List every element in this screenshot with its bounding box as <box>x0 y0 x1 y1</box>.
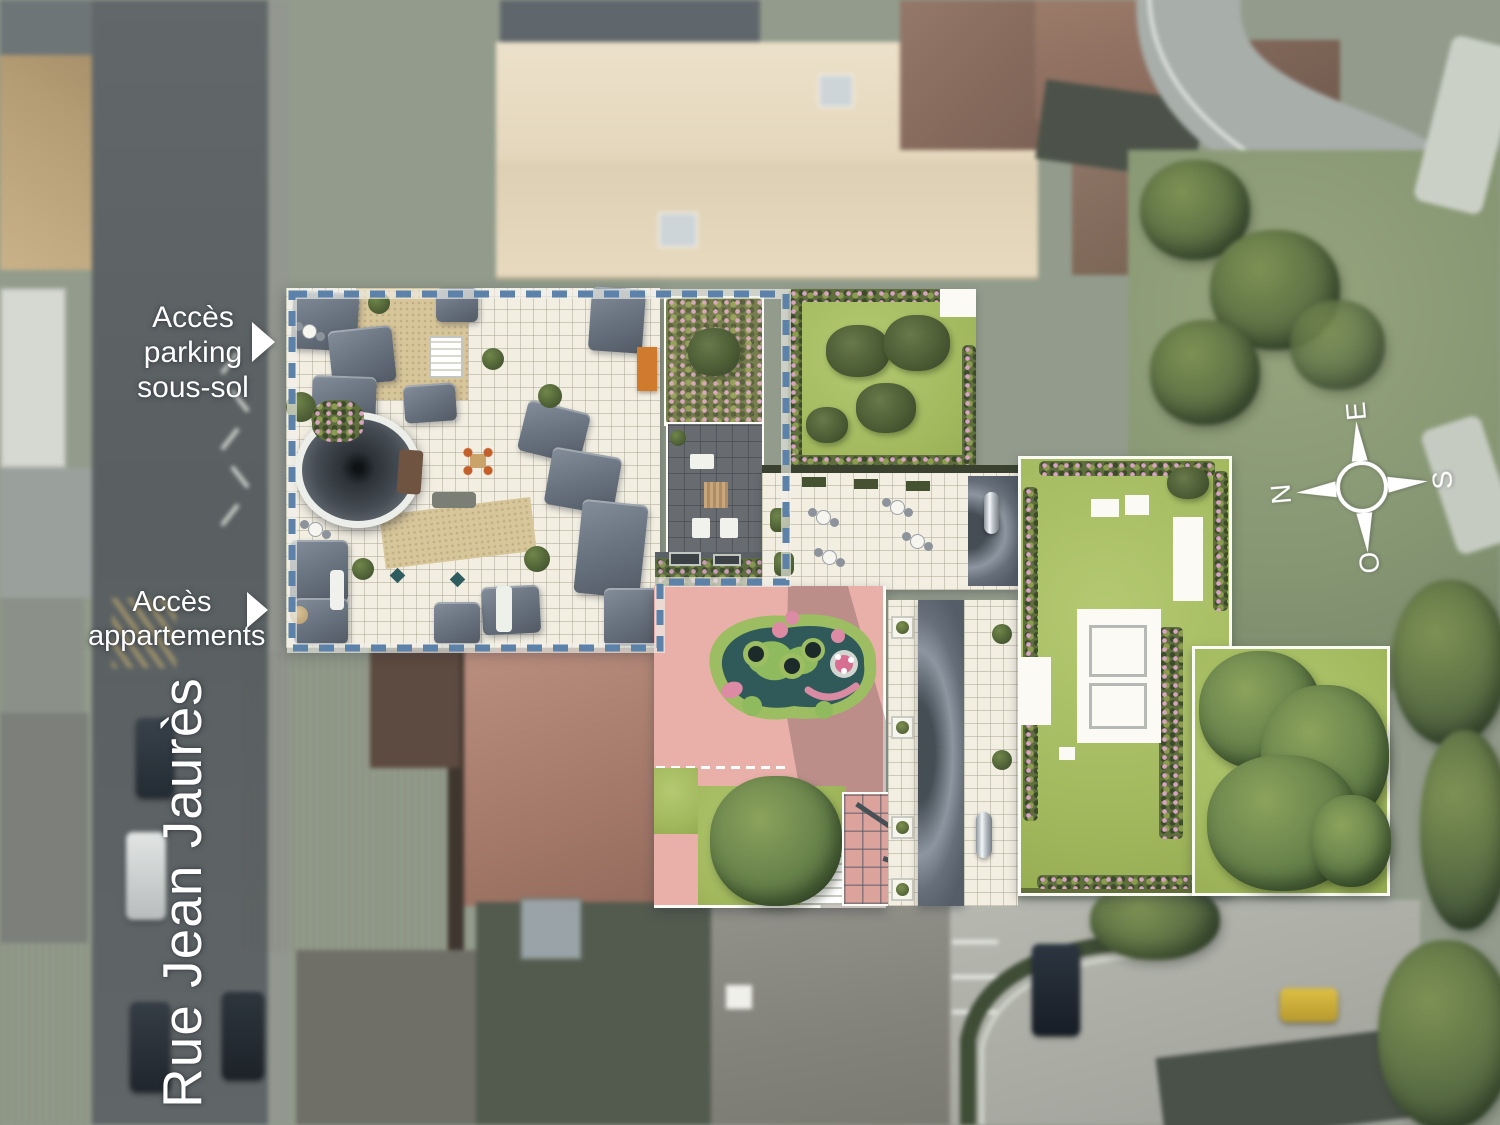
parked-car <box>1032 944 1080 1036</box>
skylight <box>1091 499 1119 517</box>
street-name-label: Rue Jean Jaurès <box>150 677 214 1108</box>
parasol <box>290 606 308 624</box>
sun-lounger <box>692 518 710 538</box>
flower-border <box>1023 487 1038 821</box>
roof-section <box>573 499 648 599</box>
access-apartments-line1: Accès <box>88 586 256 620</box>
garden-bush <box>856 383 916 433</box>
shrub <box>992 624 1012 644</box>
tree <box>1378 940 1500 1125</box>
compass-north-label: N <box>1264 483 1297 506</box>
building-block <box>0 598 85 713</box>
bistro-table <box>308 522 323 537</box>
flower-border <box>1037 875 1217 889</box>
shrub <box>482 348 504 370</box>
compass-east-label: E <box>1340 401 1373 422</box>
outdoor-sofa <box>396 449 423 495</box>
shrub <box>368 292 390 314</box>
roof-section <box>434 602 480 644</box>
access-parking-line3: sous-sol <box>118 370 268 405</box>
outdoor-sofa <box>432 492 476 508</box>
walkway-east <box>964 600 1018 906</box>
garden-bush <box>806 407 848 443</box>
wood-deck <box>704 482 728 508</box>
flower-border <box>788 289 802 471</box>
compass-north-needle <box>1296 481 1337 500</box>
flower-border <box>1213 471 1228 611</box>
bistro-table <box>910 534 925 549</box>
building-white <box>0 288 66 468</box>
shrub <box>688 328 740 376</box>
white-sofa <box>496 586 512 632</box>
playground <box>692 602 892 732</box>
shrub <box>670 430 686 446</box>
compass-east-needle <box>1348 421 1367 462</box>
roof-access <box>940 289 976 317</box>
white-sofa <box>330 570 344 610</box>
bistro-table <box>822 550 837 565</box>
access-parking-line2: parking <box>118 335 268 370</box>
skylight-large <box>1077 609 1161 743</box>
orange-awning <box>637 347 657 391</box>
access-parking-label: Accès parking sous-sol <box>118 300 268 405</box>
skylight-pane <box>1089 625 1147 677</box>
access-apartments-label: Accès appartements <box>88 586 256 654</box>
roof-section <box>588 286 646 354</box>
planter-box <box>802 477 826 487</box>
parked-car-yellow <box>1280 988 1338 1022</box>
bistro-table <box>302 324 317 339</box>
planter-box <box>906 481 930 491</box>
compass-rose: N E S O <box>1262 387 1462 587</box>
skylight <box>520 898 582 960</box>
planter <box>891 716 914 739</box>
skylight-pane <box>1089 683 1147 729</box>
metal-vent <box>976 812 992 858</box>
building-block <box>0 713 88 943</box>
shadow-roof <box>370 648 460 768</box>
lounge-cushion <box>450 572 466 588</box>
compass-west-needle <box>1356 512 1375 553</box>
park-tree <box>1290 300 1385 390</box>
hedge-line <box>762 465 1018 473</box>
metal-vent <box>984 492 999 534</box>
common-terrace <box>762 472 1018 590</box>
dining-set-orange <box>460 444 496 478</box>
house-roof <box>0 943 92 1125</box>
skylight <box>1059 747 1075 760</box>
bistro-table <box>890 500 905 515</box>
tree <box>1392 580 1500 745</box>
access-apartments-arrow-icon <box>247 592 268 628</box>
rooftop-terrace-block <box>286 288 660 648</box>
large-tree <box>1311 795 1391 887</box>
sun-lounger <box>690 454 714 469</box>
access-parking-arrow-icon <box>252 322 275 362</box>
flower-court <box>666 298 762 424</box>
planter <box>891 878 914 901</box>
garden-bush <box>1167 467 1209 499</box>
roof-section <box>436 288 478 322</box>
skylight <box>818 74 854 108</box>
house-roof <box>464 648 676 906</box>
paved-courtyard <box>668 424 762 554</box>
skylight <box>1173 517 1203 601</box>
skylight <box>726 985 752 1009</box>
shrub <box>770 508 790 532</box>
flower-border <box>962 345 976 469</box>
garden-bush <box>884 315 950 371</box>
shared-garden <box>788 289 976 471</box>
planter-box <box>854 479 878 489</box>
shrub <box>774 552 794 576</box>
courtyard-tree <box>710 776 842 906</box>
shrub <box>352 558 374 580</box>
bistro-table <box>816 510 831 525</box>
shrub <box>524 546 550 572</box>
skylight <box>1125 495 1149 515</box>
flower-border <box>1159 627 1183 839</box>
compass-south-label: S <box>1426 469 1459 490</box>
shrub <box>538 384 562 408</box>
planter-trough <box>669 552 701 566</box>
access-parking-line1: Accès <box>118 300 268 335</box>
roof-section <box>403 382 458 424</box>
flat-roof <box>476 902 711 1125</box>
skylight <box>658 212 698 248</box>
building-block <box>0 468 92 598</box>
shrub <box>992 750 1012 770</box>
planter-trough <box>713 554 741 566</box>
flat-roof <box>711 905 961 1125</box>
garden-bush <box>826 325 890 377</box>
compass-south-needle <box>1387 473 1428 492</box>
compass-west-label: O <box>1353 550 1386 574</box>
wooded-garden <box>1192 646 1390 896</box>
walkway-planters <box>888 600 918 906</box>
access-apartments-line2: appartements <box>88 620 256 654</box>
flat-roof <box>296 950 476 1125</box>
planter <box>891 616 914 639</box>
roof-section <box>604 588 658 646</box>
site-plan-screenshot: Accès parking sous-sol Accès appartement… <box>0 0 1500 1125</box>
tree <box>1420 730 1500 930</box>
sun-lounger <box>720 518 738 538</box>
planter <box>891 816 914 839</box>
roof-structure <box>1021 657 1051 725</box>
lounge-cushion <box>390 568 406 584</box>
flower-bed <box>312 400 364 442</box>
house-roof <box>900 0 1040 150</box>
park-tree <box>1150 320 1260 425</box>
courtyard-lawn <box>654 768 698 834</box>
stair-core <box>429 336 463 378</box>
curved-roof-long <box>918 600 964 906</box>
parked-car <box>222 992 264 1080</box>
